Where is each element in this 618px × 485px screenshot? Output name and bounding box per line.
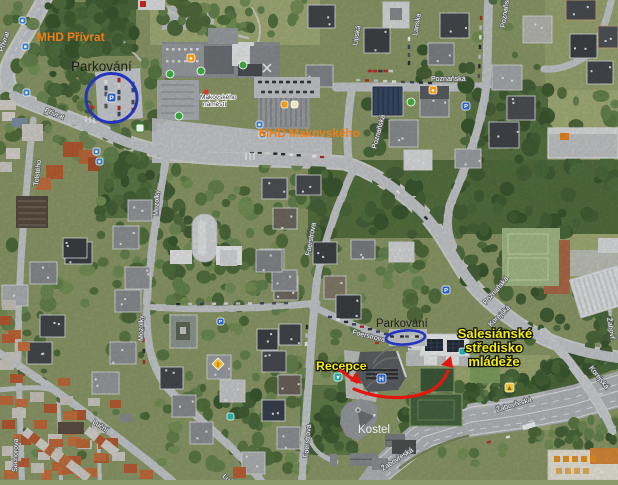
svg-text:P: P xyxy=(109,95,114,102)
svg-text:■: ■ xyxy=(95,150,98,155)
svg-text:náměstí: náměstí xyxy=(203,101,226,108)
svg-text:●: ● xyxy=(431,88,435,94)
svg-text:■: ■ xyxy=(24,45,27,50)
svg-text:Salesiánské: Salesiánské xyxy=(458,326,532,341)
svg-text:●: ● xyxy=(189,56,193,62)
svg-text:■: ■ xyxy=(98,160,101,165)
svg-text:■: ■ xyxy=(21,19,24,24)
svg-text:mládeže: mládeže xyxy=(468,354,519,369)
svg-text:Sochorova: Sochorova xyxy=(12,438,20,472)
svg-text:▲: ▲ xyxy=(506,385,513,392)
svg-text:Mozolky: Mozolky xyxy=(153,190,161,217)
svg-text:Makovského: Makovského xyxy=(200,94,237,101)
svg-text:P: P xyxy=(444,288,448,294)
svg-text:Parkování: Parkování xyxy=(376,318,429,330)
svg-text:MHD Makovského: MHD Makovského xyxy=(259,126,360,140)
svg-text:středisko: středisko xyxy=(465,340,523,355)
svg-text:Mozolky: Mozolky xyxy=(138,315,145,341)
svg-text:Parkování: Parkování xyxy=(71,59,132,74)
svg-text:■: ■ xyxy=(25,91,28,96)
svg-text:P: P xyxy=(464,104,468,110)
svg-text:Kostel: Kostel xyxy=(358,424,390,436)
svg-text:Poznaňská: Poznaňská xyxy=(431,76,466,83)
svg-text:MHD Přívrat: MHD Přívrat xyxy=(37,30,105,44)
svg-text:H: H xyxy=(379,376,384,383)
svg-text:!: ! xyxy=(217,362,219,369)
